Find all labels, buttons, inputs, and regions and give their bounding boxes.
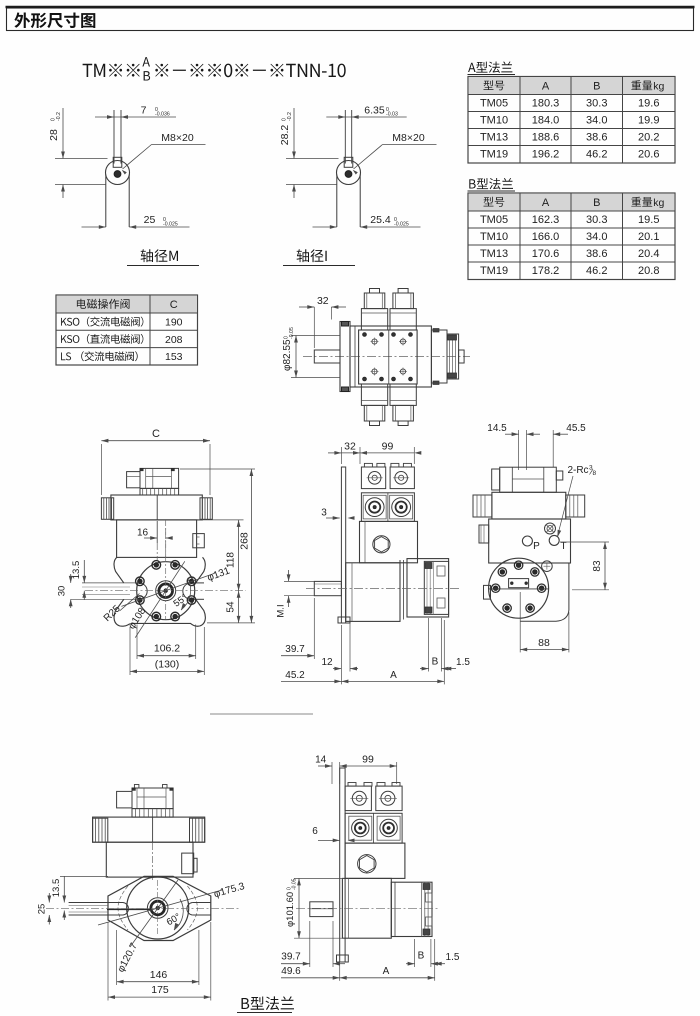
svg-text:M8×20: M8×20 — [161, 132, 194, 144]
svg-text:38.6: 38.6 — [586, 248, 607, 260]
svg-text:268: 268 — [239, 532, 251, 550]
svg-text:-0.03: -0.03 — [386, 112, 398, 118]
svg-text:T: T — [560, 541, 566, 552]
svg-text:20.2: 20.2 — [638, 132, 659, 144]
svg-text:C: C — [170, 299, 178, 311]
svg-text:190: 190 — [165, 317, 183, 329]
svg-text:20.6: 20.6 — [638, 149, 659, 161]
svg-text:34.0: 34.0 — [586, 231, 607, 243]
svg-text:28: 28 — [48, 129, 60, 141]
svg-text:45.2: 45.2 — [285, 670, 305, 681]
svg-text:TM05: TM05 — [480, 214, 508, 226]
svg-text:118: 118 — [226, 552, 237, 568]
svg-text:34.0: 34.0 — [586, 115, 607, 127]
svg-text:A: A — [383, 966, 390, 977]
svg-text:99: 99 — [362, 754, 374, 766]
svg-text:30.3: 30.3 — [586, 98, 607, 110]
svg-text:162.3: 162.3 — [532, 214, 560, 226]
svg-text:kg: kg — [653, 197, 664, 209]
svg-text:196.2: 196.2 — [532, 149, 560, 161]
svg-text:6: 6 — [312, 826, 318, 837]
svg-text:16: 16 — [137, 528, 149, 539]
svg-text:19.9: 19.9 — [638, 115, 659, 127]
svg-text:30.3: 30.3 — [586, 214, 607, 226]
svg-text:C: C — [152, 428, 160, 440]
svg-text:99: 99 — [382, 441, 394, 453]
svg-text:170.6: 170.6 — [532, 248, 560, 260]
svg-text:φ101.60: φ101.60 — [285, 892, 296, 927]
svg-text:B: B — [432, 657, 439, 668]
svg-text:φ120.7: φ120.7 — [116, 941, 141, 974]
svg-text:46.2: 46.2 — [586, 265, 607, 277]
svg-text:φ82.55: φ82.55 — [282, 339, 293, 371]
svg-text:A: A — [390, 670, 397, 681]
svg-text:TM05: TM05 — [480, 98, 508, 110]
svg-text:19.6: 19.6 — [638, 98, 659, 110]
svg-text:R25: R25 — [102, 603, 123, 624]
svg-text:13.5: 13.5 — [71, 561, 82, 580]
svg-text:25.4: 25.4 — [370, 214, 391, 226]
svg-text:B: B — [593, 197, 600, 209]
svg-text:1.5: 1.5 — [446, 952, 460, 963]
svg-text:20.1: 20.1 — [638, 231, 659, 243]
svg-text:-0.2: -0.2 — [56, 112, 62, 121]
svg-text:8: 8 — [593, 470, 597, 477]
svg-text:208: 208 — [165, 334, 183, 346]
svg-text:TM19: TM19 — [480, 265, 508, 277]
svg-text:TM13: TM13 — [480, 132, 508, 144]
svg-text:-0.05: -0.05 — [292, 878, 298, 890]
svg-text:13.5: 13.5 — [51, 879, 62, 898]
svg-text:3: 3 — [321, 508, 327, 519]
svg-text:106.2: 106.2 — [154, 643, 180, 655]
svg-text:188.6: 188.6 — [532, 132, 560, 144]
svg-text:A: A — [542, 197, 550, 209]
svg-text:166.0: 166.0 — [532, 231, 560, 243]
svg-text:55°: 55° — [172, 592, 190, 609]
svg-text:12: 12 — [321, 657, 333, 668]
svg-text:B: B — [418, 951, 425, 962]
svg-text:2-Rc: 2-Rc — [567, 465, 588, 476]
svg-text:175: 175 — [151, 984, 169, 996]
svg-text:146: 146 — [150, 969, 168, 981]
svg-text:49.6: 49.6 — [281, 966, 301, 977]
svg-text:A: A — [542, 81, 550, 93]
svg-text:-0.036: -0.036 — [155, 112, 170, 118]
svg-text:83: 83 — [592, 560, 603, 572]
svg-text:7: 7 — [141, 105, 147, 117]
svg-text:1.5: 1.5 — [456, 657, 470, 668]
svg-text:-0.025: -0.025 — [394, 222, 409, 228]
svg-text:88: 88 — [538, 637, 550, 649]
svg-text:6.35: 6.35 — [364, 105, 385, 117]
svg-text:-0.2: -0.2 — [287, 112, 293, 121]
svg-text:14.5: 14.5 — [487, 423, 507, 434]
svg-text:TM10: TM10 — [480, 231, 508, 243]
svg-text:TM19: TM19 — [480, 149, 508, 161]
svg-text:32: 32 — [317, 295, 329, 307]
svg-text:20.4: 20.4 — [638, 248, 659, 260]
svg-text:39.7: 39.7 — [285, 644, 305, 655]
svg-text:-0.025: -0.025 — [163, 222, 178, 228]
svg-text:14: 14 — [315, 755, 327, 766]
svg-text:30: 30 — [57, 586, 68, 597]
svg-text:M8×20: M8×20 — [392, 132, 425, 144]
svg-text:28.2: 28.2 — [279, 125, 291, 146]
svg-text:38.6: 38.6 — [586, 132, 607, 144]
svg-text:39.7: 39.7 — [281, 952, 301, 963]
svg-text:19.5: 19.5 — [638, 214, 659, 226]
svg-text:TM10: TM10 — [480, 115, 508, 127]
svg-text:54: 54 — [226, 601, 237, 613]
svg-text:kg: kg — [653, 81, 664, 93]
svg-text:20.8: 20.8 — [638, 265, 659, 277]
svg-text:32: 32 — [344, 441, 356, 453]
svg-text:(130): (130) — [155, 658, 180, 670]
svg-text:60°: 60° — [165, 911, 183, 928]
svg-text:25: 25 — [144, 214, 156, 226]
svg-text:178.2: 178.2 — [532, 265, 560, 277]
svg-text:-0.05: -0.05 — [289, 327, 295, 339]
svg-text:M.I: M.I — [276, 604, 287, 617]
svg-text:25: 25 — [37, 904, 48, 915]
svg-text:180.3: 180.3 — [532, 98, 560, 110]
svg-text:45.5: 45.5 — [566, 423, 586, 434]
svg-text:46.2: 46.2 — [586, 149, 607, 161]
svg-text:153: 153 — [165, 351, 183, 363]
svg-text:P: P — [533, 541, 540, 552]
svg-text:B: B — [593, 81, 600, 93]
svg-text:TM13: TM13 — [480, 248, 508, 260]
svg-text:184.0: 184.0 — [532, 115, 560, 127]
svg-text:φ175.3: φ175.3 — [213, 881, 247, 900]
